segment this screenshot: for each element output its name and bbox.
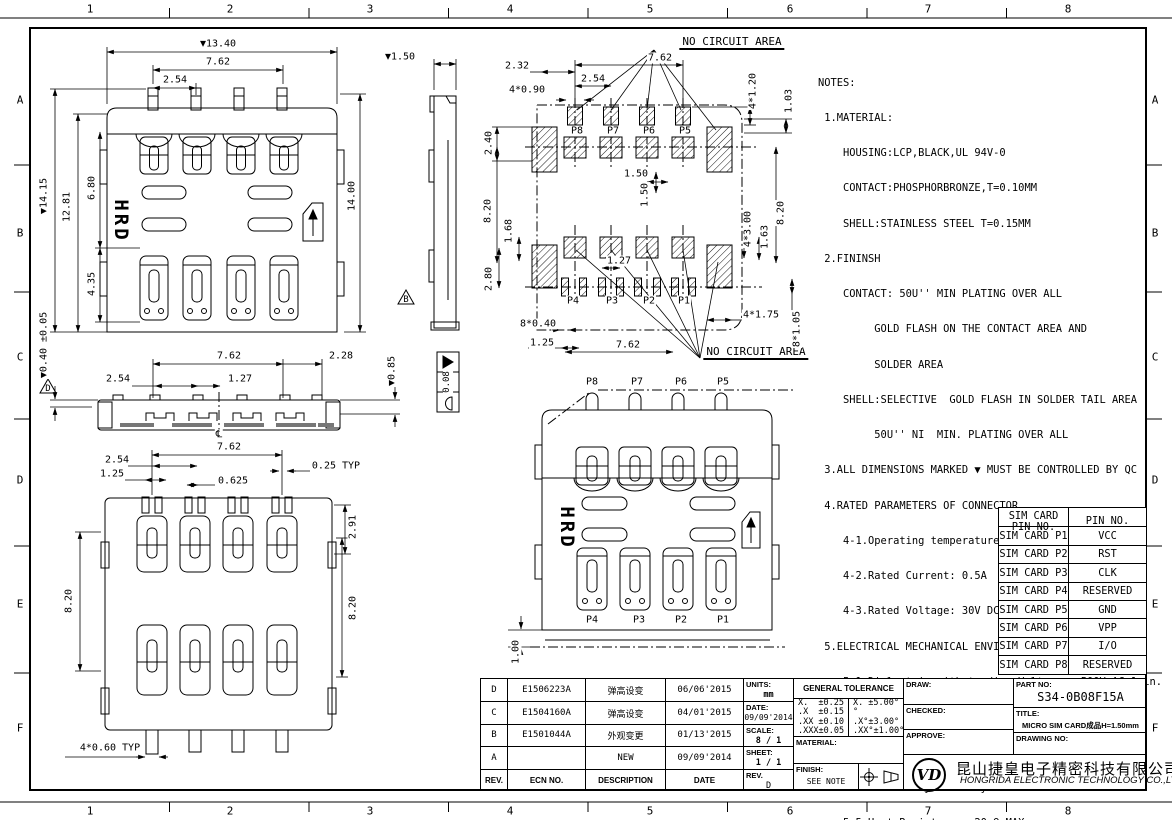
grid-row-label: E <box>17 598 24 611</box>
pin-table: SIM CARD PIN NO. PIN NO. SIM CARD P1VCC … <box>998 507 1147 675</box>
revision-header: DATE <box>665 769 743 791</box>
note-line: CONTACT: 50U'' MIN PLATING OVER ALL <box>818 289 1162 301</box>
note-line: SHELL:SELECTIVE GOLD FLASH IN SOLDER TAI… <box>818 395 1162 407</box>
revision-date: 01/13'2015 <box>665 724 743 746</box>
grid-row-label: B <box>17 227 24 240</box>
dim-profile-standoff: ▼0.40 ±0.05 <box>39 311 50 379</box>
rev-label: REV. <box>746 771 763 780</box>
company-logo: VD <box>912 758 946 792</box>
revision-desc: 弹高设变 <box>585 701 665 723</box>
dim-pcb-half-pitch: 1.27 <box>606 256 632 267</box>
side-view-drawing <box>398 59 459 412</box>
tolerance-linear: X.±0.25 .X±0.15 .XX±0.10 .XXX±0.05 <box>793 698 848 736</box>
dim-bottom-right: 8.20 <box>348 595 359 621</box>
finish-value: SEE NOTE <box>794 777 858 786</box>
profile-view-drawing <box>40 359 400 440</box>
revision-rev: C <box>481 701 507 723</box>
units-label: UNITS: <box>746 680 771 689</box>
sheet-label: SHEET: <box>746 748 773 757</box>
dim-front-pin-span: 7.62 <box>205 57 231 68</box>
pcb-pad-label: P4 <box>566 296 580 307</box>
title-block: D E1506223A 弹高设变 06/06'2015 C E1504160A … <box>480 678 1146 790</box>
dim-pcb-row-offset: 1.68 <box>504 218 515 244</box>
grid-col-label: 8 <box>1065 3 1072 16</box>
hrd-brand-mark: HRD <box>556 506 578 549</box>
part-no-value: S34-0B08F15A <box>1014 690 1147 704</box>
dim-pcb-tiny-pad-w: 8*0.40 <box>519 319 557 330</box>
dim-pcb-tiny-pad-h: 8*1.05 <box>792 310 803 348</box>
pin-label: P8 <box>585 377 599 388</box>
bottom-view-drawing <box>65 450 351 757</box>
datum-b-label: B <box>403 295 408 305</box>
note-line: SOLDER AREA <box>818 360 1162 372</box>
material-cell: MATERIAL: <box>793 736 903 763</box>
pin-label: P2 <box>674 615 688 626</box>
pcb-pad-label: P1 <box>677 296 691 307</box>
part-no-label: PART NO: <box>1016 680 1052 689</box>
sheet-cell: SHEET: 1 / 1 <box>743 746 793 768</box>
grid-col-label: 2 <box>227 805 234 818</box>
dim-pcb-pad-h: 4*1.20 <box>748 72 759 110</box>
revision-header: ECN NO. <box>507 769 585 791</box>
revision-ecn <box>507 746 585 768</box>
grid-col-label: 5 <box>647 805 654 818</box>
scale-label: SCALE: <box>746 726 774 735</box>
pcb-pad-label: P6 <box>642 126 656 137</box>
draw-cell: DRAW: <box>903 679 1013 704</box>
dim-front2-standoff: 1.00 <box>511 639 522 665</box>
part-no-cell: PART NO: S34-0B08F15A <box>1013 679 1147 707</box>
note-line: 1.MATERIAL: <box>818 113 1162 125</box>
engineering-drawing-sheet: 1 2 3 4 5 6 7 8 1 2 3 4 5 6 7 8 A B C D … <box>0 0 1172 820</box>
dim-bottom-pitch: 2.54 <box>104 455 130 466</box>
checked-cell: CHECKED: <box>903 704 1013 729</box>
dim-pcb-tall-pad-h: 4*3.00 <box>743 210 754 248</box>
dim-pcb-span-top: 7.62 <box>647 53 673 64</box>
pin-table-cell: SIM CARD P2 <box>999 545 1068 563</box>
dim-pcb-row-span-right: 8.20 <box>776 200 787 226</box>
note-line: NOTES: <box>818 78 1162 90</box>
tolerance-title: GENERAL TOLERANCE <box>803 684 894 693</box>
revision-date: 09/09'2014 <box>665 746 743 768</box>
dim-bottom-tails: 4*0.60 TYP <box>79 743 141 754</box>
note-line: 2.FININSH <box>818 254 1162 266</box>
revision-date: 06/06'2015 <box>665 679 743 701</box>
company-logo-text: VD <box>917 766 942 784</box>
revision-desc: 外观变更 <box>585 724 665 746</box>
dim-front-height: ▼14.15 <box>39 177 50 215</box>
dim-pcb-pitch: 2.54 <box>580 74 606 85</box>
pin-table-cell: SIM CARD P3 <box>999 563 1068 581</box>
dim-pcb-edge: 2.32 <box>504 61 530 72</box>
pin-table-cell: RST <box>1068 545 1146 563</box>
dim-pcb-row-span-left: 8.20 <box>483 198 494 224</box>
material-label: MATERIAL: <box>796 738 837 747</box>
approve-label: APPROVE: <box>906 731 945 740</box>
date-label: DATE: <box>746 703 768 712</box>
company-name-en: HONGRIDA ELECTRONIC TECHNOLOGY CO.,LTD. <box>960 775 1172 786</box>
grid-col-label: 1 <box>87 3 94 16</box>
grid-col-label: 4 <box>507 805 514 818</box>
tol-range: X.° <box>853 699 868 718</box>
fcf-flatness-value: 0.08 <box>443 370 453 394</box>
grid-col-label: 3 <box>367 3 374 16</box>
tol-value: ±5.00° <box>868 699 899 718</box>
dim-front-h-inner: 12.81 <box>62 191 73 223</box>
dim-front-pitch: 2.54 <box>162 75 188 86</box>
pin-label: P3 <box>632 615 646 626</box>
pcb-pad-label: P8 <box>570 126 584 137</box>
pin-table-cell: SIM CARD P7 <box>999 637 1068 655</box>
scale-value: 8 / 1 <box>744 736 793 746</box>
company-cell: VD 昆山捷皇电子精密科技有限公司 HONGRIDA ELECTRONIC TE… <box>903 754 1147 791</box>
revision-date: 04/01'2015 <box>665 701 743 723</box>
date-cell: DATE: 09/09'2014 <box>743 701 793 723</box>
note-line: SHELL:STAINLESS STEEL T=0.15MM <box>818 219 1162 231</box>
dim-bottom-left: 8.20 <box>64 588 75 614</box>
dim-bottom-corner: 2.91 <box>348 514 359 540</box>
dim-pcb-edge-left: 2.40 <box>484 130 495 156</box>
pin-table-cell: SIM CARD P5 <box>999 600 1068 618</box>
grid-col-label: 2 <box>227 3 234 16</box>
dim-front-width: ▼13.40 <box>199 39 237 50</box>
no-circuit-area-callout-top: NO CIRCUIT AREA <box>679 35 784 50</box>
pin-table-cell: VPP <box>1068 618 1146 636</box>
approve-cell: APPROVE: <box>903 729 1013 754</box>
datum-target-arrow-icon <box>443 356 453 368</box>
tolerance-header: GENERAL TOLERANCE <box>793 679 903 698</box>
profile-symbol-icon <box>446 397 452 410</box>
dim-bottom-span: 7.62 <box>216 442 242 453</box>
pin-table-cell: CLK <box>1068 563 1146 581</box>
dim-pcb-gap-h: 1.50 <box>623 169 649 180</box>
dim-pcb-span-bottom: 7.62 <box>615 340 641 351</box>
dim-profile-height: ▼0.85 <box>387 355 398 387</box>
rev-value: D <box>744 781 793 791</box>
grid-col-label: 4 <box>507 3 514 16</box>
revision-ecn: E1506223A <box>507 679 585 701</box>
title-label: TITLE: <box>1016 709 1039 718</box>
note-line: 50U'' NI MIN. PLATING OVER ALL <box>818 430 1162 442</box>
grid-col-label: 3 <box>367 805 374 818</box>
pin-table-cell: RESERVED <box>1068 582 1146 600</box>
dim-profile-pitch: 2.54 <box>105 374 131 385</box>
revision-desc: NEW <box>585 746 665 768</box>
date-value: 09/09'2014 <box>744 713 793 722</box>
units-cell: UNITS: mm <box>743 679 793 701</box>
finish-label: FINISH: <box>796 765 823 774</box>
finish-cell: FINISH: SEE NOTE <box>793 763 858 791</box>
drawing-no-label: DRAWING NO: <box>1016 734 1068 743</box>
centerline-symbol: ℄ <box>215 430 223 441</box>
dim-profile-half-pitch: 1.27 <box>227 374 253 385</box>
note-line: HOUSING:LCP,BLACK,UL 94V-0 <box>818 148 1162 160</box>
pin-label: P1 <box>716 615 730 626</box>
dim-pcb-offset: 1.03 <box>784 88 795 114</box>
dim-bottom-typ: 0.25 TYP <box>311 461 361 472</box>
grid-col-label: 6 <box>787 805 794 818</box>
projection-symbol-cell <box>858 763 903 791</box>
note-line: 3.ALL DIMENSIONS MARKED ▼ MUST BE CONTRO… <box>818 465 1162 477</box>
pin-label: P5 <box>716 377 730 388</box>
pin-table-cell: VCC <box>1068 526 1146 544</box>
note-line: GOLD FLASH ON THE CONTACT AREA AND <box>818 324 1162 336</box>
revision-header: REV. <box>481 769 507 791</box>
dim-profile-right: 2.28 <box>328 351 354 362</box>
pin-numbered-view-drawing <box>508 390 795 661</box>
grid-row-label: D <box>17 474 24 487</box>
pin-table-cell: SIM CARD P1 <box>999 526 1068 544</box>
grid-col-label: 5 <box>647 3 654 16</box>
dim-side-thickness: ▼1.50 <box>384 52 416 63</box>
pin-label: P6 <box>674 377 688 388</box>
dim-bottom-half: 0.625 <box>217 476 249 487</box>
rev-cell: REV. D <box>743 769 793 791</box>
revision-header: DESCRIPTION <box>585 769 665 791</box>
grid-col-label: 6 <box>787 3 794 16</box>
note-line: CONTACT:PHOSPHORBRONZE,T=0.10MM <box>818 183 1162 195</box>
pcb-pad-label: P3 <box>605 296 619 307</box>
grid-row-label: C <box>17 351 24 364</box>
hrd-brand-mark: HRD <box>110 199 132 242</box>
grid-row-label: F <box>17 722 24 735</box>
dim-pcb-pad-w: 4*0.90 <box>508 85 546 96</box>
pin-table-cell: SIM CARD P8 <box>999 655 1068 673</box>
dim-pcb-gap-v: 1.50 <box>640 182 651 208</box>
pin-label: P7 <box>630 377 644 388</box>
dim-bottom-edge: 1.25 <box>99 469 125 480</box>
scale-cell: SCALE: 8 / 1 <box>743 724 793 746</box>
units-value: mm <box>744 690 793 700</box>
pin-table-cell: SIM CARD P4 <box>999 582 1068 600</box>
sheet-value: 1 / 1 <box>744 758 793 768</box>
dim-pcb-offset2: 1.63 <box>760 224 771 250</box>
pin-table-cell: I/O <box>1068 637 1146 655</box>
revision-ecn: E1504160A <box>507 701 585 723</box>
revision-rev: B <box>481 724 507 746</box>
grid-col-label: 1 <box>87 805 94 818</box>
revision-desc: 弹高设变 <box>585 679 665 701</box>
checked-label: CHECKED: <box>906 706 946 715</box>
drawing-no-cell: DRAWING NO: <box>1013 732 1147 754</box>
pin-table-cell: GND <box>1068 600 1146 618</box>
pcb-pad-label: P7 <box>606 126 620 137</box>
dim-front-h-lower: 4.35 <box>87 271 98 297</box>
title-cell: TITLE: MICRO SIM CARD成品H=1.50mm <box>1013 707 1147 732</box>
dim-profile-span: 7.62 <box>216 351 242 362</box>
revision-rev: D <box>481 679 507 701</box>
pin-table-cell: RESERVED <box>1068 655 1146 673</box>
pcb-pad-label: P2 <box>642 296 656 307</box>
grid-row-label: A <box>17 94 24 107</box>
dim-front-height-right: 14.00 <box>347 180 358 212</box>
datum-d-label: D <box>45 384 50 394</box>
dim-pcb-tiny-offset: 1.25 <box>529 338 555 349</box>
dim-front-h-upper: 6.80 <box>87 175 98 201</box>
revision-ecn: E1501044A <box>507 724 585 746</box>
title-value: MICRO SIM CARD成品H=1.50mm <box>1014 720 1147 731</box>
tolerance-angular: X.°±5.00° .X°±3.00° .XX°±1.00° <box>848 698 903 736</box>
pcb-pad-label: P5 <box>678 126 692 137</box>
pin-label: P4 <box>585 615 599 626</box>
dim-pcb-tail-pad-w: 4*1.75 <box>742 310 780 321</box>
draw-label: DRAW: <box>906 680 931 689</box>
revision-rev: A <box>481 746 507 768</box>
pin-table-cell: SIM CARD P6 <box>999 618 1068 636</box>
dim-pcb-edge-bottom: 2.80 <box>484 266 495 292</box>
third-angle-projection-icon <box>859 764 902 790</box>
grid-col-label: 7 <box>925 3 932 16</box>
pin-table-header-text: SIM CARD <box>1009 511 1059 522</box>
